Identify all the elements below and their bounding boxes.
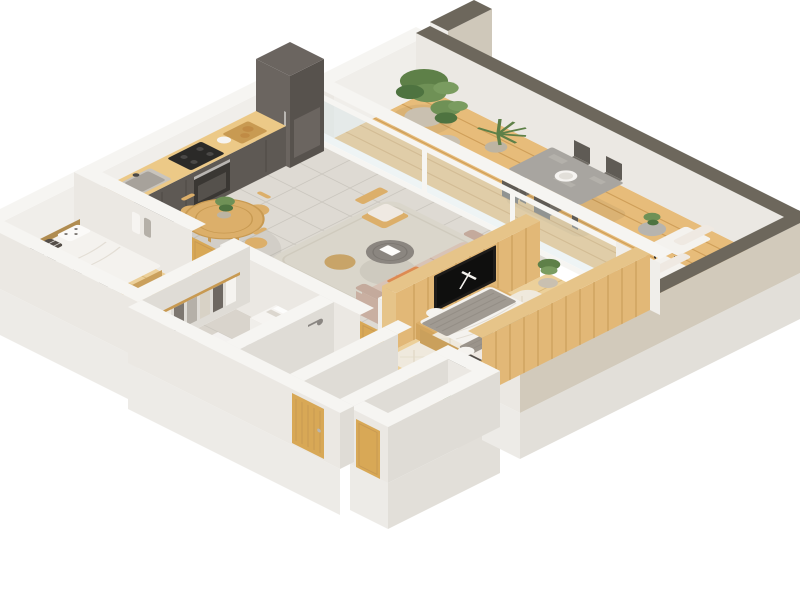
isometric-floorplan-svg [0,0,800,615]
hanging-clothes [213,284,223,313]
hanging-clothes [200,290,210,319]
hanging-robe [132,211,140,235]
outer-wall-end-east [340,406,354,469]
hanging-garment [144,217,151,239]
hanging-clothes [187,297,197,326]
floorplan-stage [0,0,800,615]
hanging-clothes [226,277,236,306]
glass-mullion [422,144,427,199]
